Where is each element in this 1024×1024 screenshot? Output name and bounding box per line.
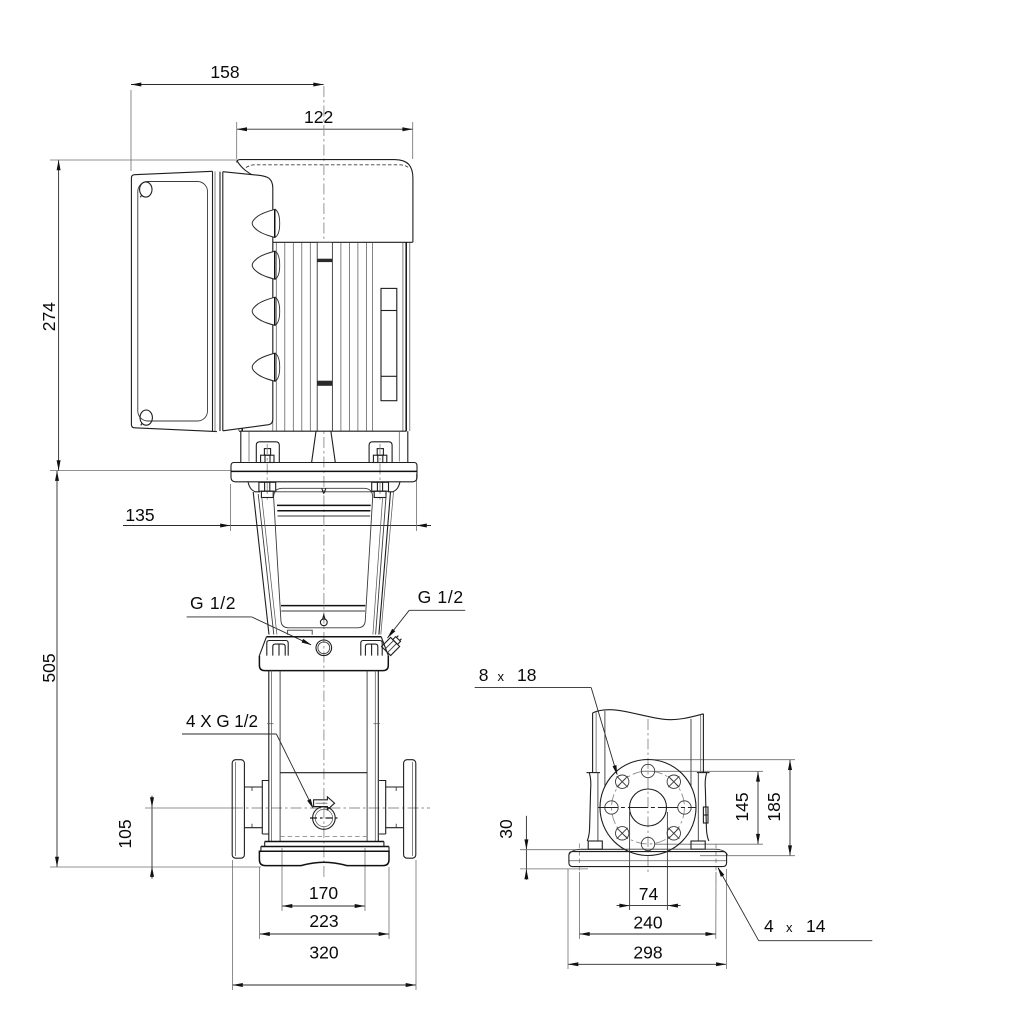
svg-text:274: 274	[39, 302, 59, 331]
svg-text:18: 18	[517, 665, 536, 685]
svg-text:G 1/2: G 1/2	[418, 587, 464, 607]
svg-text:4: 4	[764, 916, 774, 936]
svg-text:505: 505	[39, 653, 59, 682]
svg-text:30: 30	[496, 819, 516, 839]
svg-text:x: x	[786, 920, 793, 935]
svg-text:185: 185	[764, 792, 784, 821]
svg-text:170: 170	[309, 883, 338, 903]
svg-text:158: 158	[210, 62, 239, 82]
svg-text:x: x	[498, 669, 505, 684]
svg-text:G 1/2: G 1/2	[190, 593, 236, 613]
svg-text:298: 298	[633, 943, 662, 963]
svg-text:14: 14	[806, 916, 826, 936]
svg-text:8: 8	[479, 665, 489, 685]
svg-text:74: 74	[639, 884, 659, 904]
svg-text:105: 105	[115, 819, 135, 848]
svg-text:320: 320	[309, 943, 338, 963]
svg-text:145: 145	[732, 792, 752, 821]
svg-text:135: 135	[125, 505, 154, 525]
svg-text:122: 122	[304, 107, 333, 127]
svg-text:223: 223	[309, 911, 338, 931]
svg-text:240: 240	[633, 913, 662, 933]
svg-text:4 X G 1/2: 4 X G 1/2	[186, 711, 258, 731]
